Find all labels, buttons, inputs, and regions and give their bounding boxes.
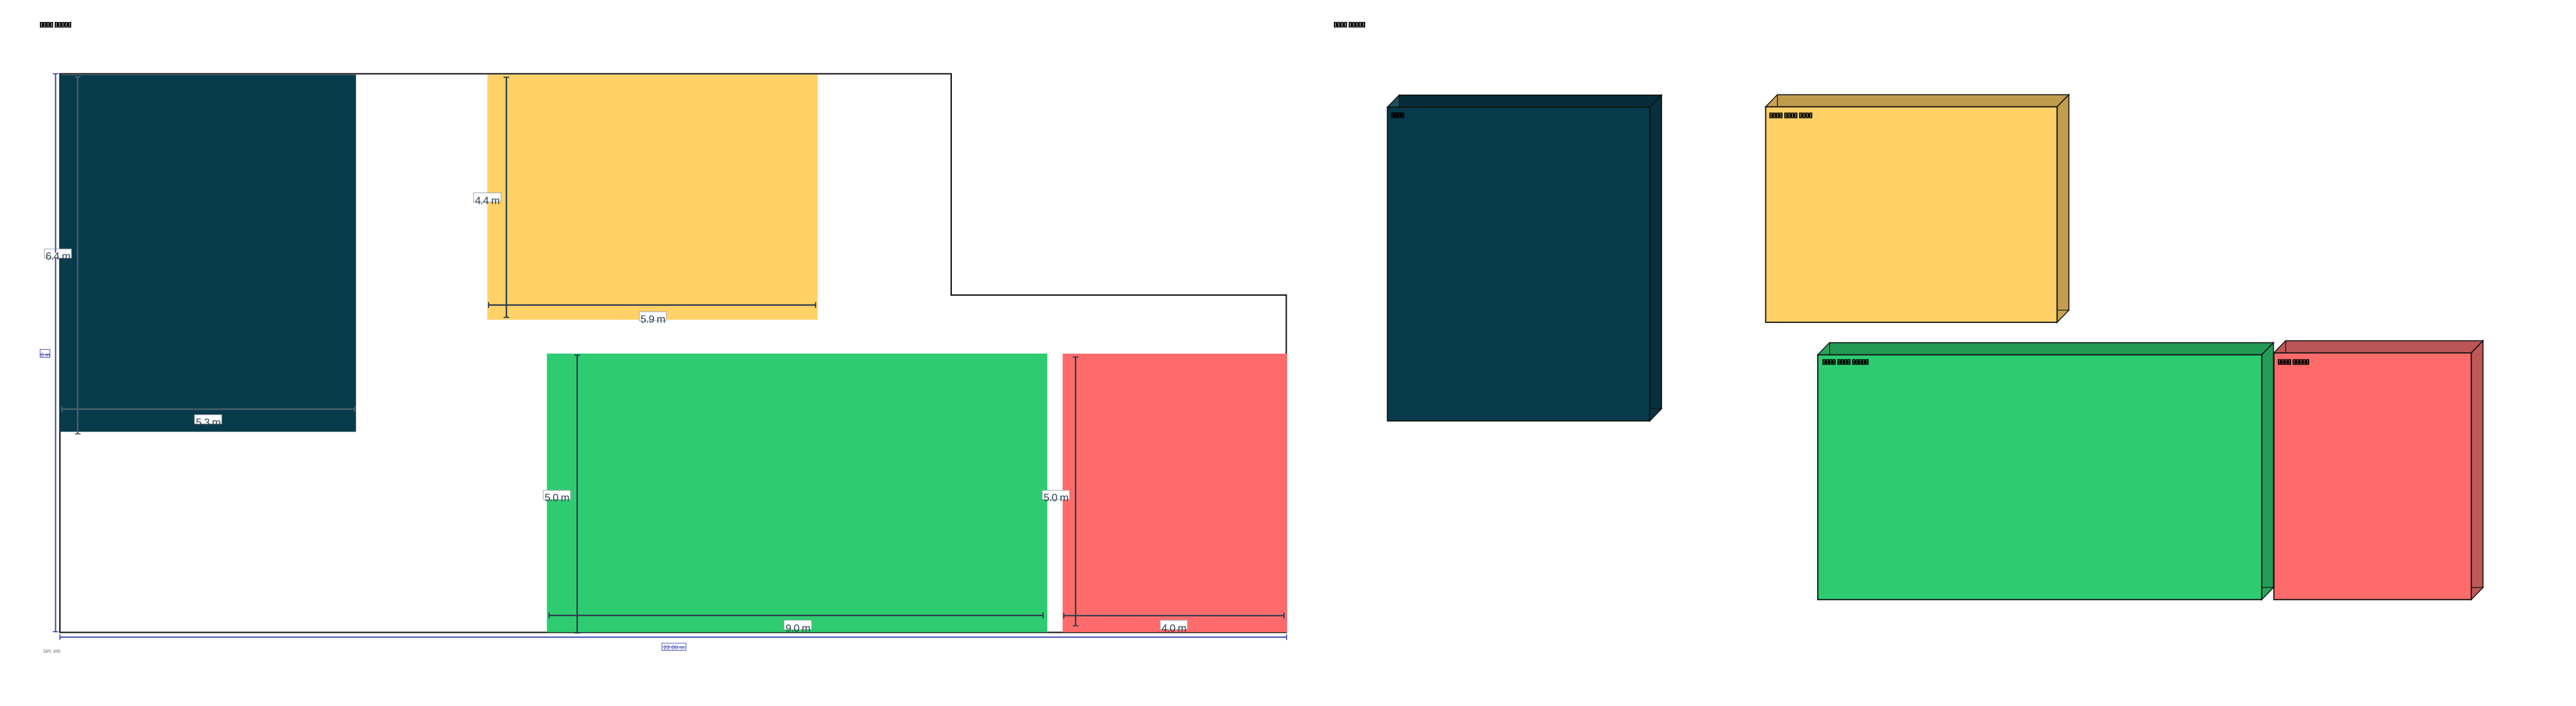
- svg-text:9.0 m: 9.0 m: [785, 623, 810, 635]
- svg-text:4.0 m: 4.0 m: [1162, 623, 1186, 635]
- svg-text:6.4 m: 6.4 m: [45, 251, 70, 262]
- svg-text:5.0 m: 5.0 m: [1044, 493, 1068, 504]
- svg-text:DPI: 300: DPI: 300: [43, 649, 61, 654]
- svg-text:4.4 m: 4.4 m: [475, 195, 499, 206]
- svg-text:22.00 m: 22.00 m: [664, 644, 684, 651]
- svg-text:5.9 m: 5.9 m: [640, 314, 665, 326]
- svg-text:5.0 m: 5.0 m: [544, 493, 569, 504]
- svg-text:5.3 m: 5.3 m: [196, 417, 220, 428]
